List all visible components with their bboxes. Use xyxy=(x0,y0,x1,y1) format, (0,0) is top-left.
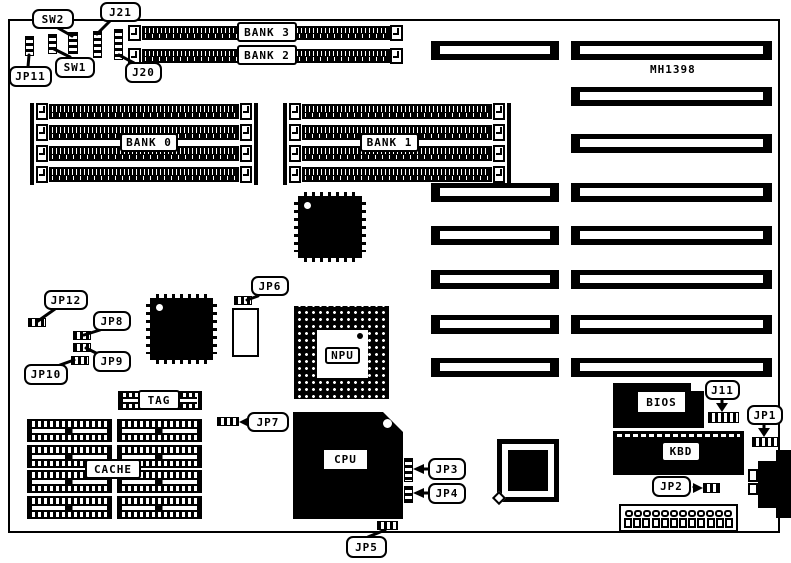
bank3-label: BANK 3 xyxy=(237,22,297,42)
jp4-label: JP4 xyxy=(428,483,466,504)
jp5-label: JP5 xyxy=(346,536,387,558)
bank2-label: BANK 2 xyxy=(237,45,297,65)
jp7-label: JP7 xyxy=(247,412,289,432)
motherboard-diagram: BANK 3 BANK 2 BANK 0 BANK 1 MH1398 xyxy=(0,0,791,563)
bank0-label: BANK 0 xyxy=(120,133,178,152)
jp11-label: JP11 xyxy=(9,66,52,87)
npu-pin1-dot xyxy=(357,333,363,339)
sw2-label: SW2 xyxy=(32,9,74,29)
jp12-label: JP12 xyxy=(44,290,88,310)
jp3-label: JP3 xyxy=(428,458,466,480)
j20-label: J20 xyxy=(125,62,162,83)
cache-label: CACHE xyxy=(85,459,141,479)
jp2-label: JP2 xyxy=(652,476,691,497)
jp10-label: JP10 xyxy=(24,364,68,385)
j11-label: J11 xyxy=(705,380,740,400)
jp8-label: JP8 xyxy=(93,311,131,331)
jp1-label: JP1 xyxy=(747,405,783,425)
cpu-label: CPU xyxy=(324,450,367,469)
jp6-label: JP6 xyxy=(251,276,289,296)
npu-label: NPU xyxy=(325,347,360,364)
kbd-label: KBD xyxy=(661,441,701,462)
sw1-label: SW1 xyxy=(55,57,95,78)
tag-label: TAG xyxy=(138,390,180,410)
j21-label: J21 xyxy=(100,2,141,22)
bank1-label: BANK 1 xyxy=(360,133,419,152)
jp9-label: JP9 xyxy=(93,351,131,372)
bios-label: BIOS xyxy=(638,392,685,412)
